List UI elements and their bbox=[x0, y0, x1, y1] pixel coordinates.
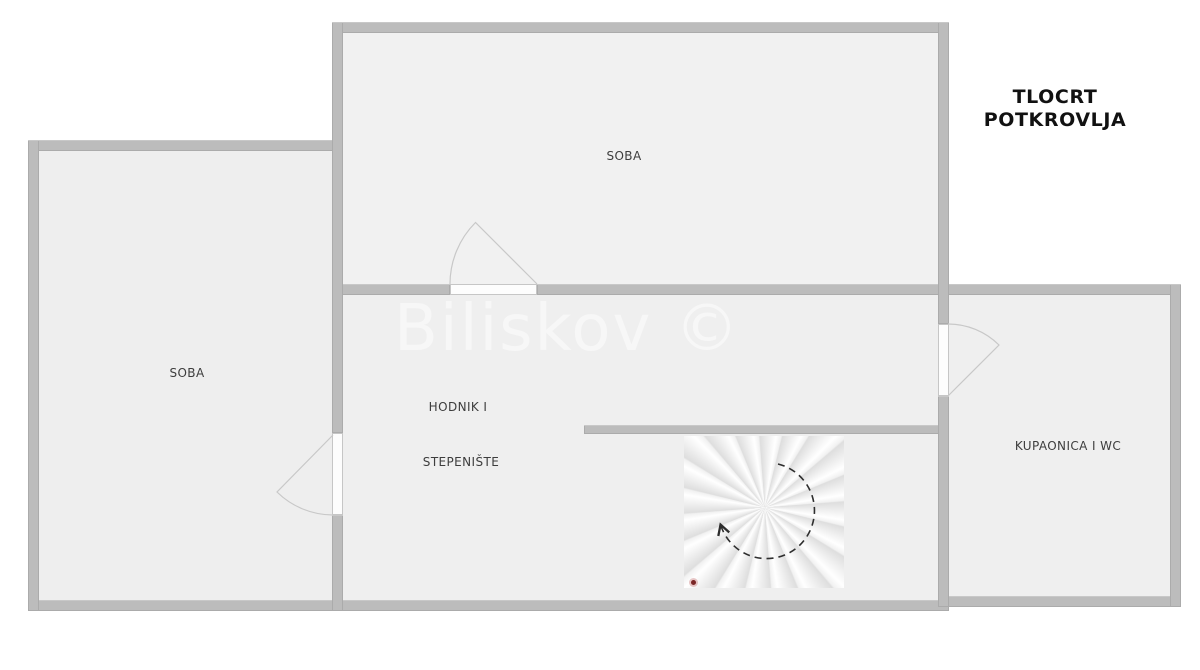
wall-divider-right-upper bbox=[938, 22, 949, 324]
door-sill-top-room bbox=[450, 284, 537, 295]
plan-title-line2: POTKROVLJA bbox=[975, 109, 1135, 132]
wall-bottom-main bbox=[28, 600, 949, 611]
room-label-soba-left: SOBA bbox=[169, 366, 204, 380]
spiral-staircase bbox=[684, 436, 844, 588]
room-label-hodnik: HODNIK I bbox=[429, 400, 488, 414]
wall-left-outer bbox=[28, 140, 39, 611]
wall-mid-right-of-door bbox=[537, 284, 1181, 295]
wall-top-room-top bbox=[332, 22, 949, 33]
plan-title: TLOCRT POTKROVLJA bbox=[975, 86, 1135, 132]
room-label-soba-top: SOBA bbox=[606, 149, 641, 163]
room-label-kupaonica: KUPAONICA I WC bbox=[1015, 439, 1121, 453]
plan-title-line1: TLOCRT bbox=[975, 86, 1135, 109]
wall-left-room-top bbox=[28, 140, 343, 151]
room-label-stepeniste: STEPENIŠTE bbox=[423, 455, 499, 469]
wall-staircase-stub bbox=[584, 425, 948, 434]
watermark: Biliskov © bbox=[394, 292, 741, 366]
wall-divider-right-lower bbox=[938, 396, 949, 607]
wall-divider-left-lower bbox=[332, 515, 343, 611]
door-sill-bathroom bbox=[938, 324, 949, 396]
wall-bathroom-bottom bbox=[938, 596, 1181, 607]
wall-divider-left-upper bbox=[332, 22, 343, 433]
staircase-start-marker bbox=[691, 580, 696, 585]
door-sill-left-room bbox=[332, 433, 343, 515]
wall-mid-left-of-door bbox=[332, 284, 450, 295]
wall-bathroom-right bbox=[1170, 284, 1181, 607]
floor-plan: Biliskov © SOBA SOBA HODNIK I S bbox=[0, 0, 1200, 670]
